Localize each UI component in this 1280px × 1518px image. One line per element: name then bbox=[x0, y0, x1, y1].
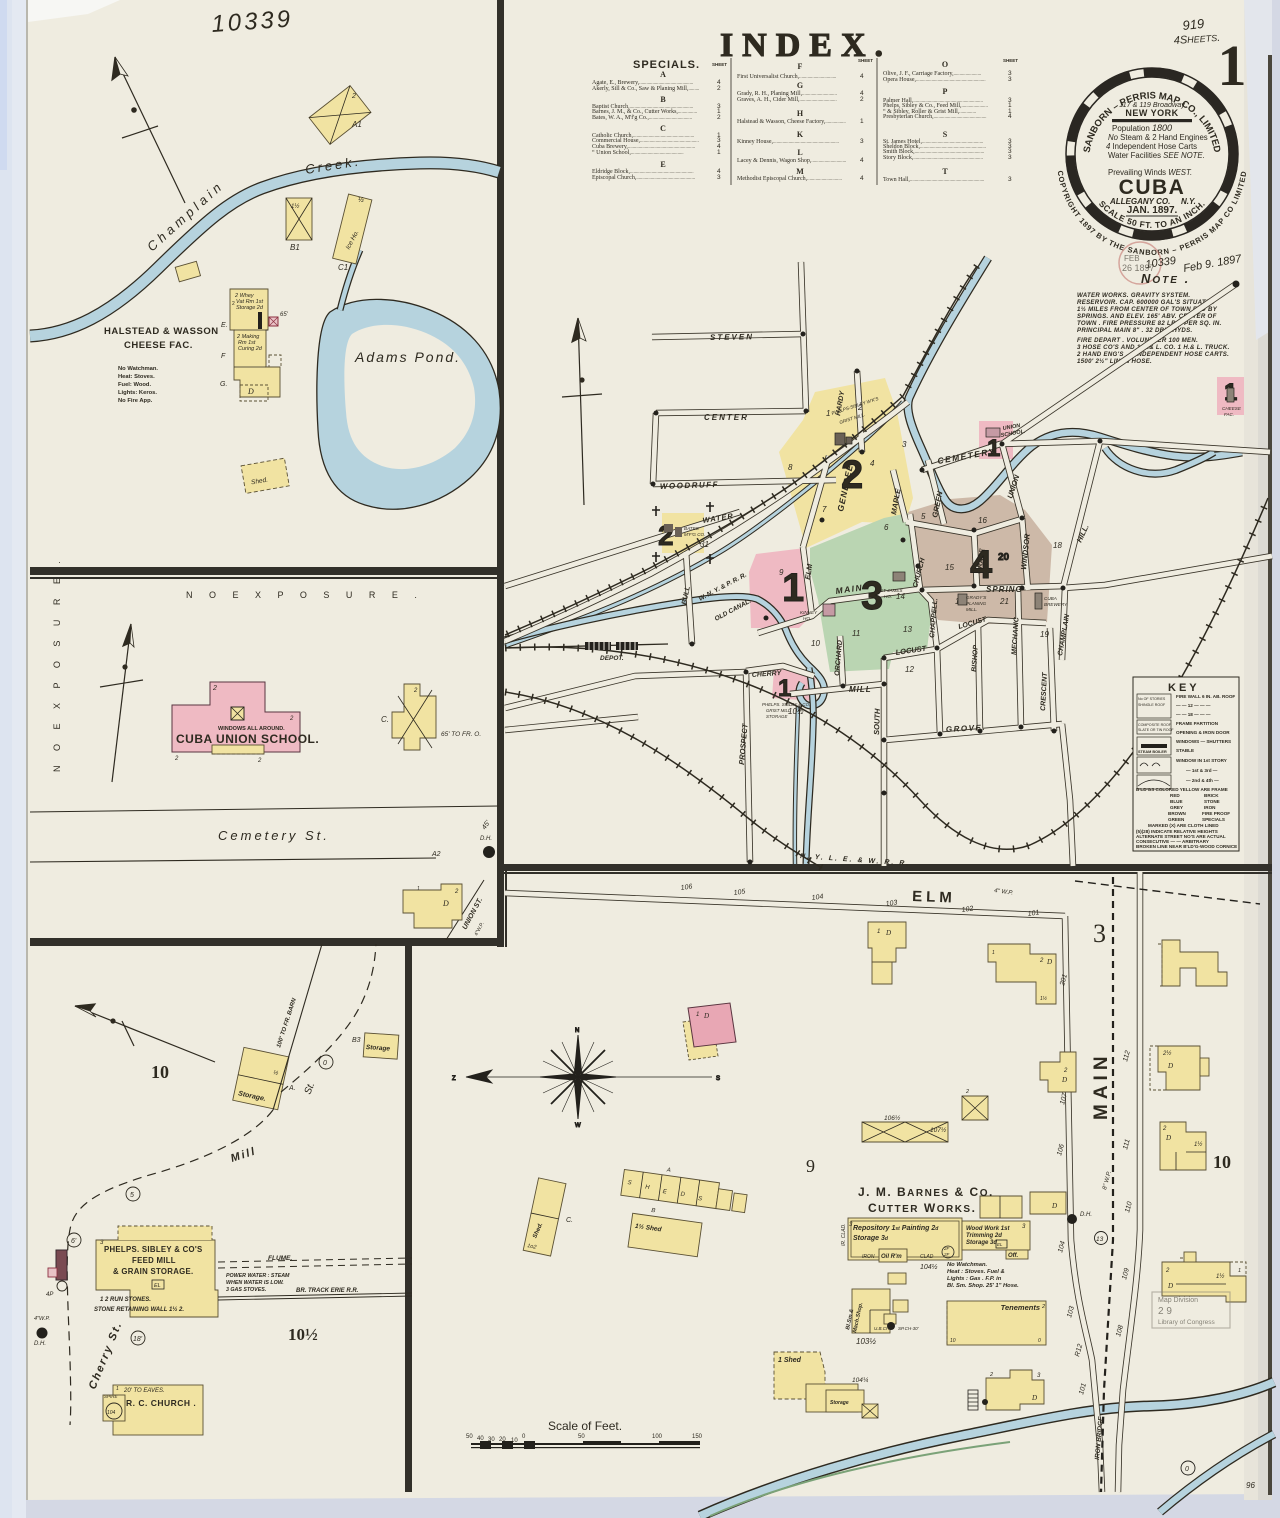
svg-text:106½: 106½ bbox=[884, 1114, 901, 1122]
svg-text:“ Union School,............: “ Union School,.........................… bbox=[592, 149, 684, 156]
svg-text:— 2nd & 4th —: — 2nd & 4th — bbox=[1186, 778, 1219, 783]
svg-text:18': 18' bbox=[133, 1336, 143, 1343]
svg-text:FAC.: FAC. bbox=[1224, 412, 1234, 417]
svg-text:First Universalist Church,....: First Universalist Church,..............… bbox=[737, 74, 836, 80]
svg-text:2: 2 bbox=[257, 758, 262, 764]
svg-text:Episcopal Church,.............: Episcopal Church,.......................… bbox=[592, 175, 695, 181]
svg-text:FLUME.: FLUME. bbox=[268, 1255, 292, 1262]
svg-text:2: 2 bbox=[1063, 1068, 1068, 1074]
svg-text:WINDOW IN 1st STORY: WINDOW IN 1st STORY bbox=[1176, 758, 1227, 763]
svg-text:Repository 1st Painting 2d: Repository 1st Painting 2d bbox=[853, 1225, 939, 1232]
svg-text:POWER WATER : STEAM: POWER WATER : STEAM bbox=[226, 1273, 290, 1279]
svg-text:D: D bbox=[442, 899, 449, 908]
svg-text:½: ½ bbox=[358, 196, 364, 204]
svg-text:20: 20 bbox=[499, 1437, 506, 1443]
svg-text:MARKED (X) ARE CLOTH LINED: MARKED (X) ARE CLOTH LINED bbox=[1148, 823, 1219, 828]
svg-text:WATER WORKS. GRAVITY SYSTEM.: WATER WORKS. GRAVITY SYSTEM. bbox=[1077, 292, 1190, 299]
svg-text:SHEET: SHEET bbox=[712, 62, 727, 67]
svg-text:B: B bbox=[660, 95, 666, 104]
svg-text:3: 3 bbox=[1008, 154, 1012, 161]
svg-text:KINNEY: KINNEY bbox=[800, 610, 818, 615]
svg-text:FIRE WALL 6 IN. AB. ROOF: FIRE WALL 6 IN. AB. ROOF bbox=[1176, 694, 1235, 699]
svg-text:GREEN: GREEN bbox=[1168, 817, 1185, 822]
svg-text:FEB: FEB bbox=[1124, 254, 1140, 263]
svg-text:CHEESE: CHEESE bbox=[1222, 406, 1242, 411]
svg-text:3: 3 bbox=[1008, 176, 1012, 183]
svg-text:BATES: BATES bbox=[684, 526, 700, 531]
svg-text:SLATE OR TIN ROOF: SLATE OR TIN ROOF bbox=[1138, 728, 1174, 732]
svg-text:HO.: HO. bbox=[884, 594, 892, 599]
svg-text:MILL.: MILL. bbox=[966, 607, 978, 612]
svg-text:TOWN . FIRE PRESSURE 82 LBS. P: TOWN . FIRE PRESSURE 82 LBS. PER SQ. IN. bbox=[1077, 320, 1222, 327]
svg-text:EL: EL bbox=[997, 1242, 1003, 1247]
svg-text:BROWN: BROWN bbox=[1168, 811, 1187, 816]
svg-text:HO.: HO. bbox=[803, 616, 811, 621]
svg-text:B1: B1 bbox=[290, 243, 300, 252]
svg-text:D: D bbox=[885, 929, 891, 937]
svg-text:COMPOSITE ROOF: COMPOSITE ROOF bbox=[1138, 723, 1172, 727]
svg-text:STEAM BOILER: STEAM BOILER bbox=[1138, 750, 1167, 754]
svg-text:SPIRE: SPIRE bbox=[104, 1394, 119, 1399]
svg-text:C: C bbox=[660, 124, 666, 133]
svg-text:10: 10 bbox=[151, 1062, 169, 1082]
svg-text:D.H.: D.H. bbox=[34, 1341, 46, 1347]
svg-text:FEED MILL: FEED MILL bbox=[132, 1256, 176, 1265]
svg-text:Curing 2d: Curing 2d bbox=[238, 346, 263, 352]
svg-text:FIRE PROOF: FIRE PROOF bbox=[1202, 811, 1230, 816]
svg-text:1: 1 bbox=[1218, 33, 1247, 98]
svg-text:D: D bbox=[1167, 1062, 1173, 1070]
svg-text:104¼: 104¼ bbox=[852, 1377, 869, 1384]
svg-text:Storage 3d: Storage 3d bbox=[853, 1235, 889, 1242]
svg-text:100: 100 bbox=[652, 1434, 663, 1440]
svg-text:G.: G. bbox=[220, 381, 227, 388]
svg-text:Lacey & Dennis, Wagon Shop,...: Lacey & Dennis, Wagon Shop,.............… bbox=[737, 158, 846, 164]
svg-text:16: 16 bbox=[978, 516, 987, 525]
svg-text:Kinney House,.................: Kinney House,...........................… bbox=[737, 139, 839, 145]
svg-text:OPENING & IRON DOOR: OPENING & IRON DOOR bbox=[1176, 730, 1230, 735]
svg-text:BROKEN LINE NEAR B'LD'G-WOOD C: BROKEN LINE NEAR B'LD'G-WOOD CORNICE bbox=[1136, 844, 1237, 849]
svg-text:Story Block,..................: Story Block,............................… bbox=[883, 155, 983, 161]
svg-text:20: 20 bbox=[998, 552, 1010, 563]
svg-text:Scale of Feet.: Scale of Feet. bbox=[548, 1419, 622, 1433]
svg-text:SOUTH: SOUTH bbox=[872, 708, 882, 735]
svg-text:GRADY'S: GRADY'S bbox=[966, 595, 987, 600]
svg-text:50: 50 bbox=[466, 1434, 473, 1440]
svg-text:1: 1 bbox=[778, 675, 791, 702]
svg-text:SHEET: SHEET bbox=[858, 58, 873, 63]
svg-text:1½: 1½ bbox=[1216, 1273, 1224, 1280]
svg-text:Lights: Keros.: Lights: Keros. bbox=[118, 390, 157, 396]
svg-text:EL: EL bbox=[154, 1283, 161, 1289]
svg-text:A1: A1 bbox=[351, 120, 362, 129]
svg-text:150: 150 bbox=[692, 1434, 703, 1440]
svg-text:JAN. 1897.: JAN. 1897. bbox=[1127, 205, 1178, 216]
svg-text:6: 6 bbox=[884, 523, 889, 532]
svg-text:4: 4 bbox=[970, 543, 993, 587]
svg-text:21: 21 bbox=[999, 597, 1009, 606]
svg-text:C1: C1 bbox=[338, 263, 348, 272]
svg-text:0: 0 bbox=[1185, 1466, 1189, 1473]
svg-text:D: D bbox=[1051, 1202, 1057, 1210]
svg-text:10: 10 bbox=[1213, 1152, 1231, 1172]
svg-text:D: D bbox=[1167, 1282, 1173, 1290]
svg-text:N.Y.: N.Y. bbox=[1181, 197, 1196, 206]
svg-text:R. C. CHURCH .: R. C. CHURCH . bbox=[126, 1398, 196, 1408]
svg-text:PHELPS. SIBLEY & CO.: PHELPS. SIBLEY & CO. bbox=[762, 702, 810, 707]
svg-text:STEVEN: STEVEN bbox=[710, 332, 754, 342]
svg-text:C.: C. bbox=[566, 1217, 573, 1224]
svg-text:CUBA: CUBA bbox=[1119, 176, 1186, 199]
svg-text:2: 2 bbox=[1162, 1126, 1167, 1132]
svg-text:1½: 1½ bbox=[1040, 995, 1048, 1002]
svg-text:No Steam & 2 Hand Engines: No Steam & 2 Hand Engines bbox=[1108, 133, 1208, 142]
svg-text:1: 1 bbox=[992, 950, 995, 956]
svg-text:9: 9 bbox=[779, 568, 784, 577]
svg-text:5: 5 bbox=[921, 512, 926, 521]
svg-text:STONE RETAINING WALL 1½ 2.: STONE RETAINING WALL 1½ 2. bbox=[94, 1306, 184, 1313]
svg-text:4: 4 bbox=[860, 175, 864, 182]
svg-text:20' TO EAVES.: 20' TO EAVES. bbox=[123, 1388, 165, 1394]
svg-text:13: 13 bbox=[903, 625, 912, 634]
svg-text:15: 15 bbox=[945, 563, 954, 572]
svg-text:Methodist Episcopal Church,...: Methodist Episcopal Church,.............… bbox=[737, 176, 842, 182]
svg-text:4: 4 bbox=[1008, 113, 1012, 120]
svg-text:31: 31 bbox=[700, 540, 709, 549]
svg-text:G: G bbox=[797, 81, 803, 90]
svg-text:Heat : Stoves. Fuel &: Heat : Stoves. Fuel & bbox=[947, 1269, 1005, 1275]
svg-text:DEPOT.: DEPOT. bbox=[600, 655, 624, 662]
svg-text:30: 30 bbox=[488, 1437, 495, 1443]
svg-text:4: 4 bbox=[870, 459, 875, 468]
svg-text:STABLE: STABLE bbox=[1176, 748, 1194, 753]
svg-text:— 1st & 3rd —: — 1st & 3rd — bbox=[1186, 768, 1218, 773]
svg-text:J. M. BARNES & CO.: J. M. BARNES & CO. bbox=[858, 1185, 994, 1199]
svg-text:B3: B3 bbox=[352, 1037, 361, 1044]
svg-text:BRICK: BRICK bbox=[1204, 793, 1219, 798]
svg-text:2 HAND ENG'S , 4 INDEPENDENT H: 2 HAND ENG'S , 4 INDEPENDENT HOSE CARTS. bbox=[1076, 351, 1229, 358]
svg-text:N O E X P O S U R E .: N O E X P O S U R E . bbox=[186, 590, 424, 600]
svg-text:0: 0 bbox=[1038, 1338, 1041, 1344]
svg-text:CUBA UNION SCHOOL.: CUBA UNION SCHOOL. bbox=[176, 732, 319, 746]
svg-text:STONE: STONE bbox=[1204, 799, 1220, 804]
svg-text:Storage 2d: Storage 2d bbox=[236, 305, 264, 311]
svg-text:K: K bbox=[797, 130, 804, 139]
svg-text:1: 1 bbox=[877, 929, 880, 935]
svg-text:3 GAS STOVES.: 3 GAS STOVES. bbox=[226, 1287, 267, 1293]
svg-text:SPECIALS: SPECIALS bbox=[1202, 817, 1225, 822]
svg-text:B: B bbox=[651, 1208, 656, 1215]
svg-text:3: 3 bbox=[861, 574, 883, 618]
svg-text:Opera House,..................: Opera House,............................… bbox=[883, 77, 986, 83]
svg-text:1: 1 bbox=[717, 149, 721, 156]
svg-text:SPECIALS.: SPECIALS. bbox=[633, 59, 700, 71]
svg-text:IRON: IRON bbox=[862, 1254, 875, 1260]
svg-text:Halstead & Wasson, Cheese Fact: Halstead & Wasson, Cheese Factory,......… bbox=[737, 119, 846, 125]
svg-text:D: D bbox=[1165, 1134, 1171, 1142]
svg-text:2: 2 bbox=[717, 85, 721, 92]
svg-text:Population 1800: Population 1800 bbox=[1112, 123, 1172, 133]
svg-text:0: 0 bbox=[323, 1060, 327, 1067]
svg-text:4P: 4P bbox=[46, 1292, 53, 1298]
svg-text:D: D bbox=[1031, 1394, 1037, 1402]
svg-text:CLAD: CLAD bbox=[920, 1254, 934, 1260]
svg-text:Bates, W. A., M'f'g Co.,......: Bates, W. A., M'f'g Co.,................… bbox=[592, 114, 692, 121]
svg-text:S: S bbox=[627, 1180, 632, 1187]
svg-text:F: F bbox=[221, 353, 226, 360]
svg-text:Oil R'm: Oil R'm bbox=[881, 1254, 902, 1260]
svg-text:4"W.P.: 4"W.P. bbox=[34, 1316, 50, 1322]
svg-text:18: 18 bbox=[1053, 541, 1062, 550]
svg-text:1½: 1½ bbox=[1194, 1141, 1202, 1148]
svg-text:Graves, A. H., Cider Mill,....: Graves, A. H., Cider Mill,..............… bbox=[737, 97, 837, 103]
svg-text:P: P bbox=[943, 87, 948, 96]
svg-text:2: 2 bbox=[989, 1372, 993, 1378]
svg-text:40: 40 bbox=[477, 1436, 484, 1442]
svg-text:CENTER: CENTER bbox=[704, 413, 749, 422]
svg-text:2: 2 bbox=[965, 1089, 969, 1095]
svg-text:Bl. Sm. Shop. 25' 1" Hose.: Bl. Sm. Shop. 25' 1" Hose. bbox=[947, 1283, 1019, 1289]
svg-text:2F: 2F bbox=[943, 1246, 950, 1251]
svg-text:Town Hall,....................: Town Hall,..............................… bbox=[883, 177, 984, 183]
svg-text:13: 13 bbox=[1096, 1236, 1104, 1243]
svg-text:1½: 1½ bbox=[291, 203, 299, 210]
svg-text:PHELPS. SIBLEY & CO'S: PHELPS. SIBLEY & CO'S bbox=[104, 1245, 203, 1254]
svg-text:N O E X P O S U R E .: N O E X P O S U R E . bbox=[52, 555, 62, 772]
svg-text:2: 2 bbox=[289, 716, 294, 722]
svg-text:SP.CH-30': SP.CH-30' bbox=[898, 1326, 919, 1331]
svg-text:WINDOWS — SHUTTERS: WINDOWS — SHUTTERS bbox=[1176, 739, 1231, 744]
svg-text:1 Shed: 1 Shed bbox=[778, 1357, 802, 1364]
svg-text:D: D bbox=[247, 387, 254, 396]
svg-text:2F: 2F bbox=[943, 1252, 950, 1257]
svg-text:Map Division: Map Division bbox=[1158, 1297, 1198, 1304]
svg-text:HALSTEAD & WASSON: HALSTEAD & WASSON bbox=[104, 326, 219, 337]
svg-text:4 Independent Hose Carts: 4 Independent Hose Carts bbox=[1106, 142, 1197, 151]
svg-text:MAIN: MAIN bbox=[1091, 1051, 1112, 1120]
svg-text:2: 2 bbox=[212, 685, 217, 692]
svg-text:Presbyterian Church,..........: Presbyterian Church,....................… bbox=[883, 114, 986, 120]
svg-text:2: 2 bbox=[351, 93, 356, 100]
svg-text:3: 3 bbox=[860, 138, 864, 145]
svg-text:D: D bbox=[1046, 958, 1052, 966]
svg-text:5: 5 bbox=[130, 1192, 134, 1199]
svg-text:Library of Congress: Library of Congress bbox=[1158, 1319, 1215, 1326]
svg-text:65' TO FR. O.: 65' TO FR. O. bbox=[441, 731, 481, 738]
svg-text:& GRAIN STORAGE.: & GRAIN STORAGE. bbox=[113, 1267, 193, 1276]
svg-text:F: F bbox=[798, 62, 803, 71]
svg-text:U.B.CH.: U.B.CH. bbox=[874, 1326, 891, 1331]
svg-text:Fuel: Wood.: Fuel: Wood. bbox=[118, 382, 151, 388]
svg-text:2: 2 bbox=[1039, 958, 1044, 964]
svg-text:A.: A. bbox=[288, 1085, 296, 1092]
svg-text:1: 1 bbox=[116, 1386, 119, 1392]
svg-text:ST JAMES: ST JAMES bbox=[880, 588, 903, 593]
svg-text:W: W bbox=[575, 1123, 581, 1129]
svg-text:Heat: Stoves.: Heat: Stoves. bbox=[118, 374, 155, 380]
svg-text:1: 1 bbox=[860, 118, 864, 125]
svg-text:Z: Z bbox=[452, 1076, 456, 1082]
svg-text:4: 4 bbox=[860, 157, 864, 164]
svg-text:A2: A2 bbox=[431, 851, 441, 858]
svg-text:12: 12 bbox=[905, 665, 914, 674]
svg-text:2: 2 bbox=[454, 889, 459, 895]
svg-text:2: 2 bbox=[860, 96, 864, 103]
svg-text:9: 9 bbox=[806, 1156, 815, 1176]
svg-text:D: D bbox=[703, 1012, 709, 1020]
svg-text:Off.: Off. bbox=[1008, 1253, 1019, 1259]
svg-text:A: A bbox=[665, 1167, 671, 1174]
svg-text:2 9: 2 9 bbox=[1158, 1306, 1172, 1317]
svg-text:Cemetery St.: Cemetery St. bbox=[218, 828, 330, 843]
svg-text:CHEESE FAC.: CHEESE FAC. bbox=[124, 340, 193, 351]
svg-text:104½: 104½ bbox=[920, 1263, 938, 1271]
svg-text:WHEN WATER IS LOW.: WHEN WATER IS LOW. bbox=[226, 1280, 284, 1286]
svg-text:919: 919 bbox=[1182, 16, 1205, 33]
svg-text:Water Facilities SEE NOTE.: Water Facilities SEE NOTE. bbox=[1108, 151, 1205, 160]
svg-text:No Fire App.: No Fire App. bbox=[118, 398, 153, 404]
svg-text:L: L bbox=[797, 148, 802, 157]
svg-text:E.: E. bbox=[221, 322, 228, 329]
svg-text:3: 3 bbox=[902, 440, 907, 449]
svg-text:103½: 103½ bbox=[856, 1337, 876, 1346]
svg-text:MILL: MILL bbox=[849, 685, 872, 694]
svg-text:C.: C. bbox=[381, 715, 389, 724]
svg-text:BREWERY.: BREWERY. bbox=[1044, 602, 1068, 607]
svg-text:IRON: IRON bbox=[1204, 805, 1216, 810]
svg-text:19: 19 bbox=[1040, 630, 1049, 639]
svg-text:Trimming 2d: Trimming 2d bbox=[966, 1233, 1002, 1239]
svg-text:2: 2 bbox=[717, 114, 721, 121]
svg-text:STORAGE: STORAGE bbox=[766, 714, 787, 719]
svg-text:T: T bbox=[942, 167, 948, 176]
svg-text:IR. CLAD.: IR. CLAD. bbox=[841, 1223, 847, 1246]
svg-text:2: 2 bbox=[174, 756, 179, 762]
svg-text:10339: 10339 bbox=[211, 5, 294, 38]
svg-text:CUBA: CUBA bbox=[1044, 596, 1057, 601]
svg-text:S: S bbox=[698, 1196, 703, 1203]
svg-text:1: 1 bbox=[417, 886, 420, 892]
svg-text:E: E bbox=[660, 160, 665, 169]
svg-text:GRIST MILL: GRIST MILL bbox=[766, 708, 791, 713]
svg-text:1 2 RUN STONES.: 1 2 RUN STONES. bbox=[100, 1297, 151, 1303]
svg-text:H: H bbox=[797, 109, 804, 118]
svg-text:1: 1 bbox=[1238, 1268, 1241, 1274]
svg-text:KEY: KEY bbox=[1168, 682, 1200, 694]
svg-text:PLANING: PLANING bbox=[966, 601, 987, 606]
svg-text:2: 2 bbox=[232, 301, 235, 307]
svg-text:GREY: GREY bbox=[1170, 805, 1183, 810]
svg-text:No Watchman.: No Watchman. bbox=[118, 366, 158, 372]
svg-text:50: 50 bbox=[578, 1434, 585, 1440]
svg-text:RESERVOIR. CAP. 600000 GAL'S S: RESERVOIR. CAP. 600000 GAL'S SITUATED bbox=[1077, 299, 1215, 306]
svg-text:1: 1 bbox=[696, 1012, 699, 1018]
svg-text:3: 3 bbox=[717, 174, 721, 181]
svg-text:No OF STORIES: No OF STORIES bbox=[1138, 697, 1166, 701]
svg-text:Tenements: Tenements bbox=[1001, 1303, 1040, 1312]
svg-text:SHINGLE ROOF: SHINGLE ROOF bbox=[1138, 703, 1166, 707]
svg-text:ELM: ELM bbox=[912, 888, 956, 907]
svg-text:SHEET: SHEET bbox=[1003, 58, 1018, 63]
svg-text:107½: 107½ bbox=[930, 1126, 947, 1134]
svg-text:96: 96 bbox=[1246, 1481, 1255, 1490]
svg-text:Akerly, Sill & Co., Saw & Plan: Akerly, Sill & Co., Saw & Planing Mill,.… bbox=[592, 86, 699, 92]
svg-text:BR. TRACK ERIE R.R.: BR. TRACK ERIE R.R. bbox=[296, 1288, 359, 1294]
svg-text:10: 10 bbox=[811, 639, 820, 648]
svg-text:10½: 10½ bbox=[288, 1325, 318, 1344]
svg-text:S: S bbox=[943, 130, 948, 139]
svg-text:Wood Work 1st: Wood Work 1st bbox=[966, 1226, 1010, 1232]
svg-text:— — 18 — — —: — — 18 — — — bbox=[1176, 712, 1211, 717]
svg-text:1: 1 bbox=[782, 566, 804, 610]
svg-text:1: 1 bbox=[987, 435, 1000, 462]
svg-text:O: O bbox=[942, 60, 948, 69]
svg-text:Storage: Storage bbox=[830, 1400, 849, 1406]
svg-text:104: 104 bbox=[107, 1410, 116, 1416]
svg-text:2: 2 bbox=[413, 688, 418, 694]
svg-text:D.H.: D.H. bbox=[1080, 1212, 1092, 1218]
svg-text:11: 11 bbox=[852, 629, 860, 638]
svg-text:3 HOSE CO'S AND 1 H.& L. CO. 1: 3 HOSE CO'S AND 1 H.& L. CO. 1 H.& L. TR… bbox=[1077, 344, 1230, 351]
svg-text:2: 2 bbox=[841, 453, 863, 497]
svg-text:Adams Pond.: Adams Pond. bbox=[354, 349, 461, 365]
svg-text:10: 10 bbox=[950, 1338, 956, 1344]
svg-text:3: 3 bbox=[1093, 919, 1106, 948]
svg-text:6': 6' bbox=[71, 1238, 77, 1245]
svg-text:No Watchman.: No Watchman. bbox=[947, 1262, 988, 1268]
svg-text:B'LD'GS COLORED YELLOW ARE FRA: B'LD'GS COLORED YELLOW ARE FRAME bbox=[1136, 787, 1228, 792]
svg-text:8: 8 bbox=[788, 463, 793, 472]
svg-text:CUTTER WORKS.: CUTTER WORKS. bbox=[868, 1201, 976, 1215]
svg-text:7: 7 bbox=[822, 505, 827, 514]
svg-text:1: 1 bbox=[826, 409, 830, 418]
svg-text:14: 14 bbox=[896, 592, 905, 601]
svg-text:M: M bbox=[796, 167, 804, 176]
svg-text:4: 4 bbox=[860, 73, 864, 80]
svg-text:D.H.: D.H. bbox=[480, 836, 492, 842]
svg-text:2: 2 bbox=[1041, 1304, 1045, 1310]
svg-text:Storage 3d: Storage 3d bbox=[966, 1240, 997, 1246]
svg-text:FIRE DEPART . VOLUNTEER 100 ME: FIRE DEPART . VOLUNTEER 100 MEN. bbox=[1077, 337, 1198, 344]
svg-text:FRAME PARTITION: FRAME PARTITION bbox=[1176, 721, 1219, 726]
svg-text:RED: RED bbox=[1170, 793, 1180, 798]
svg-text:Lights : Gas . F.P. in: Lights : Gas . F.P. in bbox=[947, 1276, 1002, 1282]
svg-text:NEW YORK: NEW YORK bbox=[1125, 108, 1178, 118]
svg-text:A: A bbox=[660, 70, 666, 79]
svg-text:65': 65' bbox=[280, 312, 289, 318]
svg-text:2½: 2½ bbox=[1162, 1050, 1171, 1057]
svg-text:S: S bbox=[716, 1076, 720, 1082]
svg-text:N: N bbox=[575, 1028, 579, 1034]
svg-text:D: D bbox=[1061, 1076, 1067, 1084]
svg-text:M'F'G CO.: M'F'G CO. bbox=[684, 532, 705, 537]
svg-text:— — 12 — — —: — — 12 — — — bbox=[1176, 703, 1211, 708]
svg-text:10: 10 bbox=[511, 1438, 518, 1444]
svg-text:3: 3 bbox=[1008, 76, 1012, 83]
svg-text:BLUE: BLUE bbox=[1170, 799, 1183, 804]
svg-text:2: 2 bbox=[1165, 1268, 1170, 1274]
